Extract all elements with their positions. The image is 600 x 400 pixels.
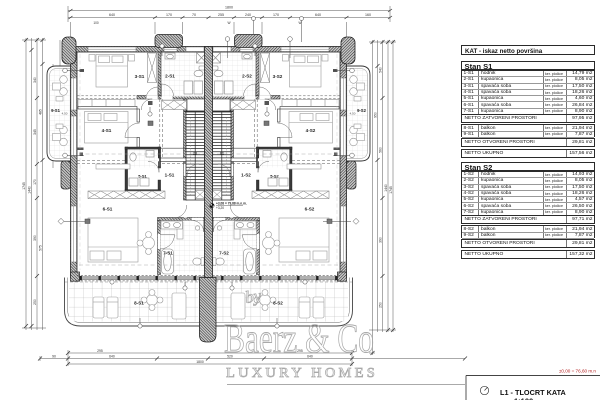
svg-text:+3,20: +3,20 xyxy=(216,206,224,210)
svg-text:1800: 1800 xyxy=(196,360,204,364)
svg-text:9-S2: 9-S2 xyxy=(357,108,367,113)
svg-text:540: 540 xyxy=(379,67,383,73)
svg-text:8-S2: 8-S2 xyxy=(273,301,283,306)
svg-text:1-S1: 1-S1 xyxy=(165,173,175,178)
svg-text:1-S2: 1-S2 xyxy=(241,173,251,178)
svg-text:170: 170 xyxy=(33,179,37,185)
svg-text:7-S1: 7-S1 xyxy=(163,251,173,256)
svg-text:575: 575 xyxy=(39,245,43,251)
svg-text:640: 640 xyxy=(109,354,115,358)
svg-text:1440: 1440 xyxy=(384,184,388,192)
svg-text:4-S1: 4-S1 xyxy=(102,128,112,133)
svg-text:6-S2: 6-S2 xyxy=(305,207,315,212)
svg-text:Baerz & Co: Baerz & Co xyxy=(224,315,374,361)
svg-text:295: 295 xyxy=(97,349,103,353)
svg-text:1:100: 1:100 xyxy=(514,397,533,400)
svg-text:9-S1: 9-S1 xyxy=(51,108,61,113)
svg-text:23: 23 xyxy=(193,152,197,156)
svg-text:70: 70 xyxy=(192,13,196,17)
svg-text:160: 160 xyxy=(365,13,371,17)
svg-text:5-S2: 5-S2 xyxy=(270,174,279,179)
svg-text:100: 100 xyxy=(93,21,99,25)
svg-text:1800: 1800 xyxy=(225,6,233,10)
svg-text:390: 390 xyxy=(33,235,37,241)
svg-text:+3,08 = 79,88 m.n.m.: +3,08 = 79,88 m.n.m. xyxy=(216,202,247,206)
svg-text:640: 640 xyxy=(109,13,115,17)
svg-text:345: 345 xyxy=(33,129,37,135)
svg-text:3-S2: 3-S2 xyxy=(273,74,283,79)
svg-text:4,50: 4,50 xyxy=(350,112,356,116)
svg-text:1440: 1440 xyxy=(28,186,32,194)
svg-text:W: W xyxy=(298,21,301,25)
svg-text:2-S2: 2-S2 xyxy=(242,74,252,79)
svg-text:4,50: 4,50 xyxy=(62,112,68,116)
svg-text:640: 640 xyxy=(315,13,321,17)
svg-text:560: 560 xyxy=(379,147,383,153)
svg-text:3-S1: 3-S1 xyxy=(135,74,145,79)
svg-text:340: 340 xyxy=(33,77,37,83)
svg-text:1745: 1745 xyxy=(22,182,26,190)
svg-text:5-S1: 5-S1 xyxy=(138,174,147,179)
svg-text:485: 485 xyxy=(39,109,43,115)
svg-text:7-S2: 7-S2 xyxy=(219,251,229,256)
svg-text:170: 170 xyxy=(166,13,172,17)
svg-text:±0,00 = 76,60 m.n: ±0,00 = 76,60 m.n xyxy=(559,369,597,374)
svg-text:L1 - TLOCRT KATA: L1 - TLOCRT KATA xyxy=(500,388,567,397)
svg-text:90: 90 xyxy=(52,354,56,358)
svg-text:2-S1: 2-S1 xyxy=(165,74,175,79)
svg-text:255: 255 xyxy=(218,13,224,17)
svg-text:170: 170 xyxy=(273,13,279,17)
svg-text:8-S1: 8-S1 xyxy=(134,301,144,306)
svg-text:W: W xyxy=(227,21,230,25)
svg-text:250: 250 xyxy=(379,302,383,308)
svg-text:LUXURY HOMES: LUXURY HOMES xyxy=(226,365,378,380)
svg-text:950: 950 xyxy=(374,112,378,118)
svg-text:250: 250 xyxy=(33,299,37,305)
svg-text:390: 390 xyxy=(379,237,383,243)
svg-text:by: by xyxy=(244,286,263,307)
svg-text:4-S2: 4-S2 xyxy=(306,128,316,133)
svg-text:240: 240 xyxy=(245,13,251,17)
svg-text:1745: 1745 xyxy=(389,186,393,194)
svg-text:6-S1: 6-S1 xyxy=(103,207,113,212)
